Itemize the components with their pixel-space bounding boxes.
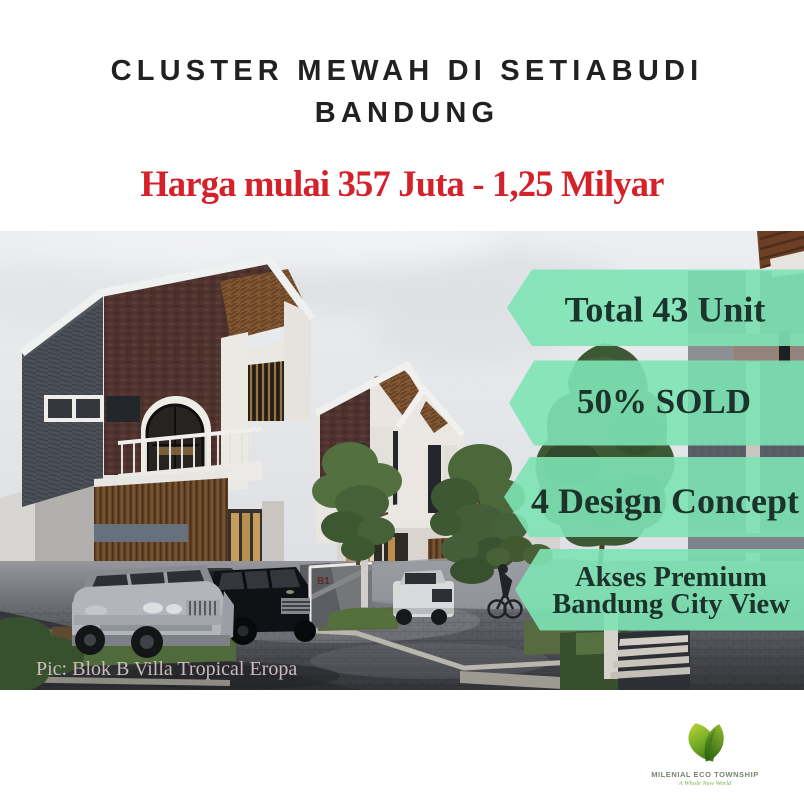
svg-text:Total 43 Unit: Total 43 Unit	[565, 290, 766, 330]
svg-text:B1: B1	[317, 576, 330, 587]
svg-text:4 Design Concept: 4 Design Concept	[531, 481, 799, 521]
svg-text:50% SOLD: 50% SOLD	[577, 382, 751, 421]
svg-text:Bandung City View: Bandung City View	[552, 589, 790, 620]
svg-text:Pic: Blok B Villa Tropical Ero: Pic: Blok B Villa Tropical Eropa	[36, 658, 297, 680]
